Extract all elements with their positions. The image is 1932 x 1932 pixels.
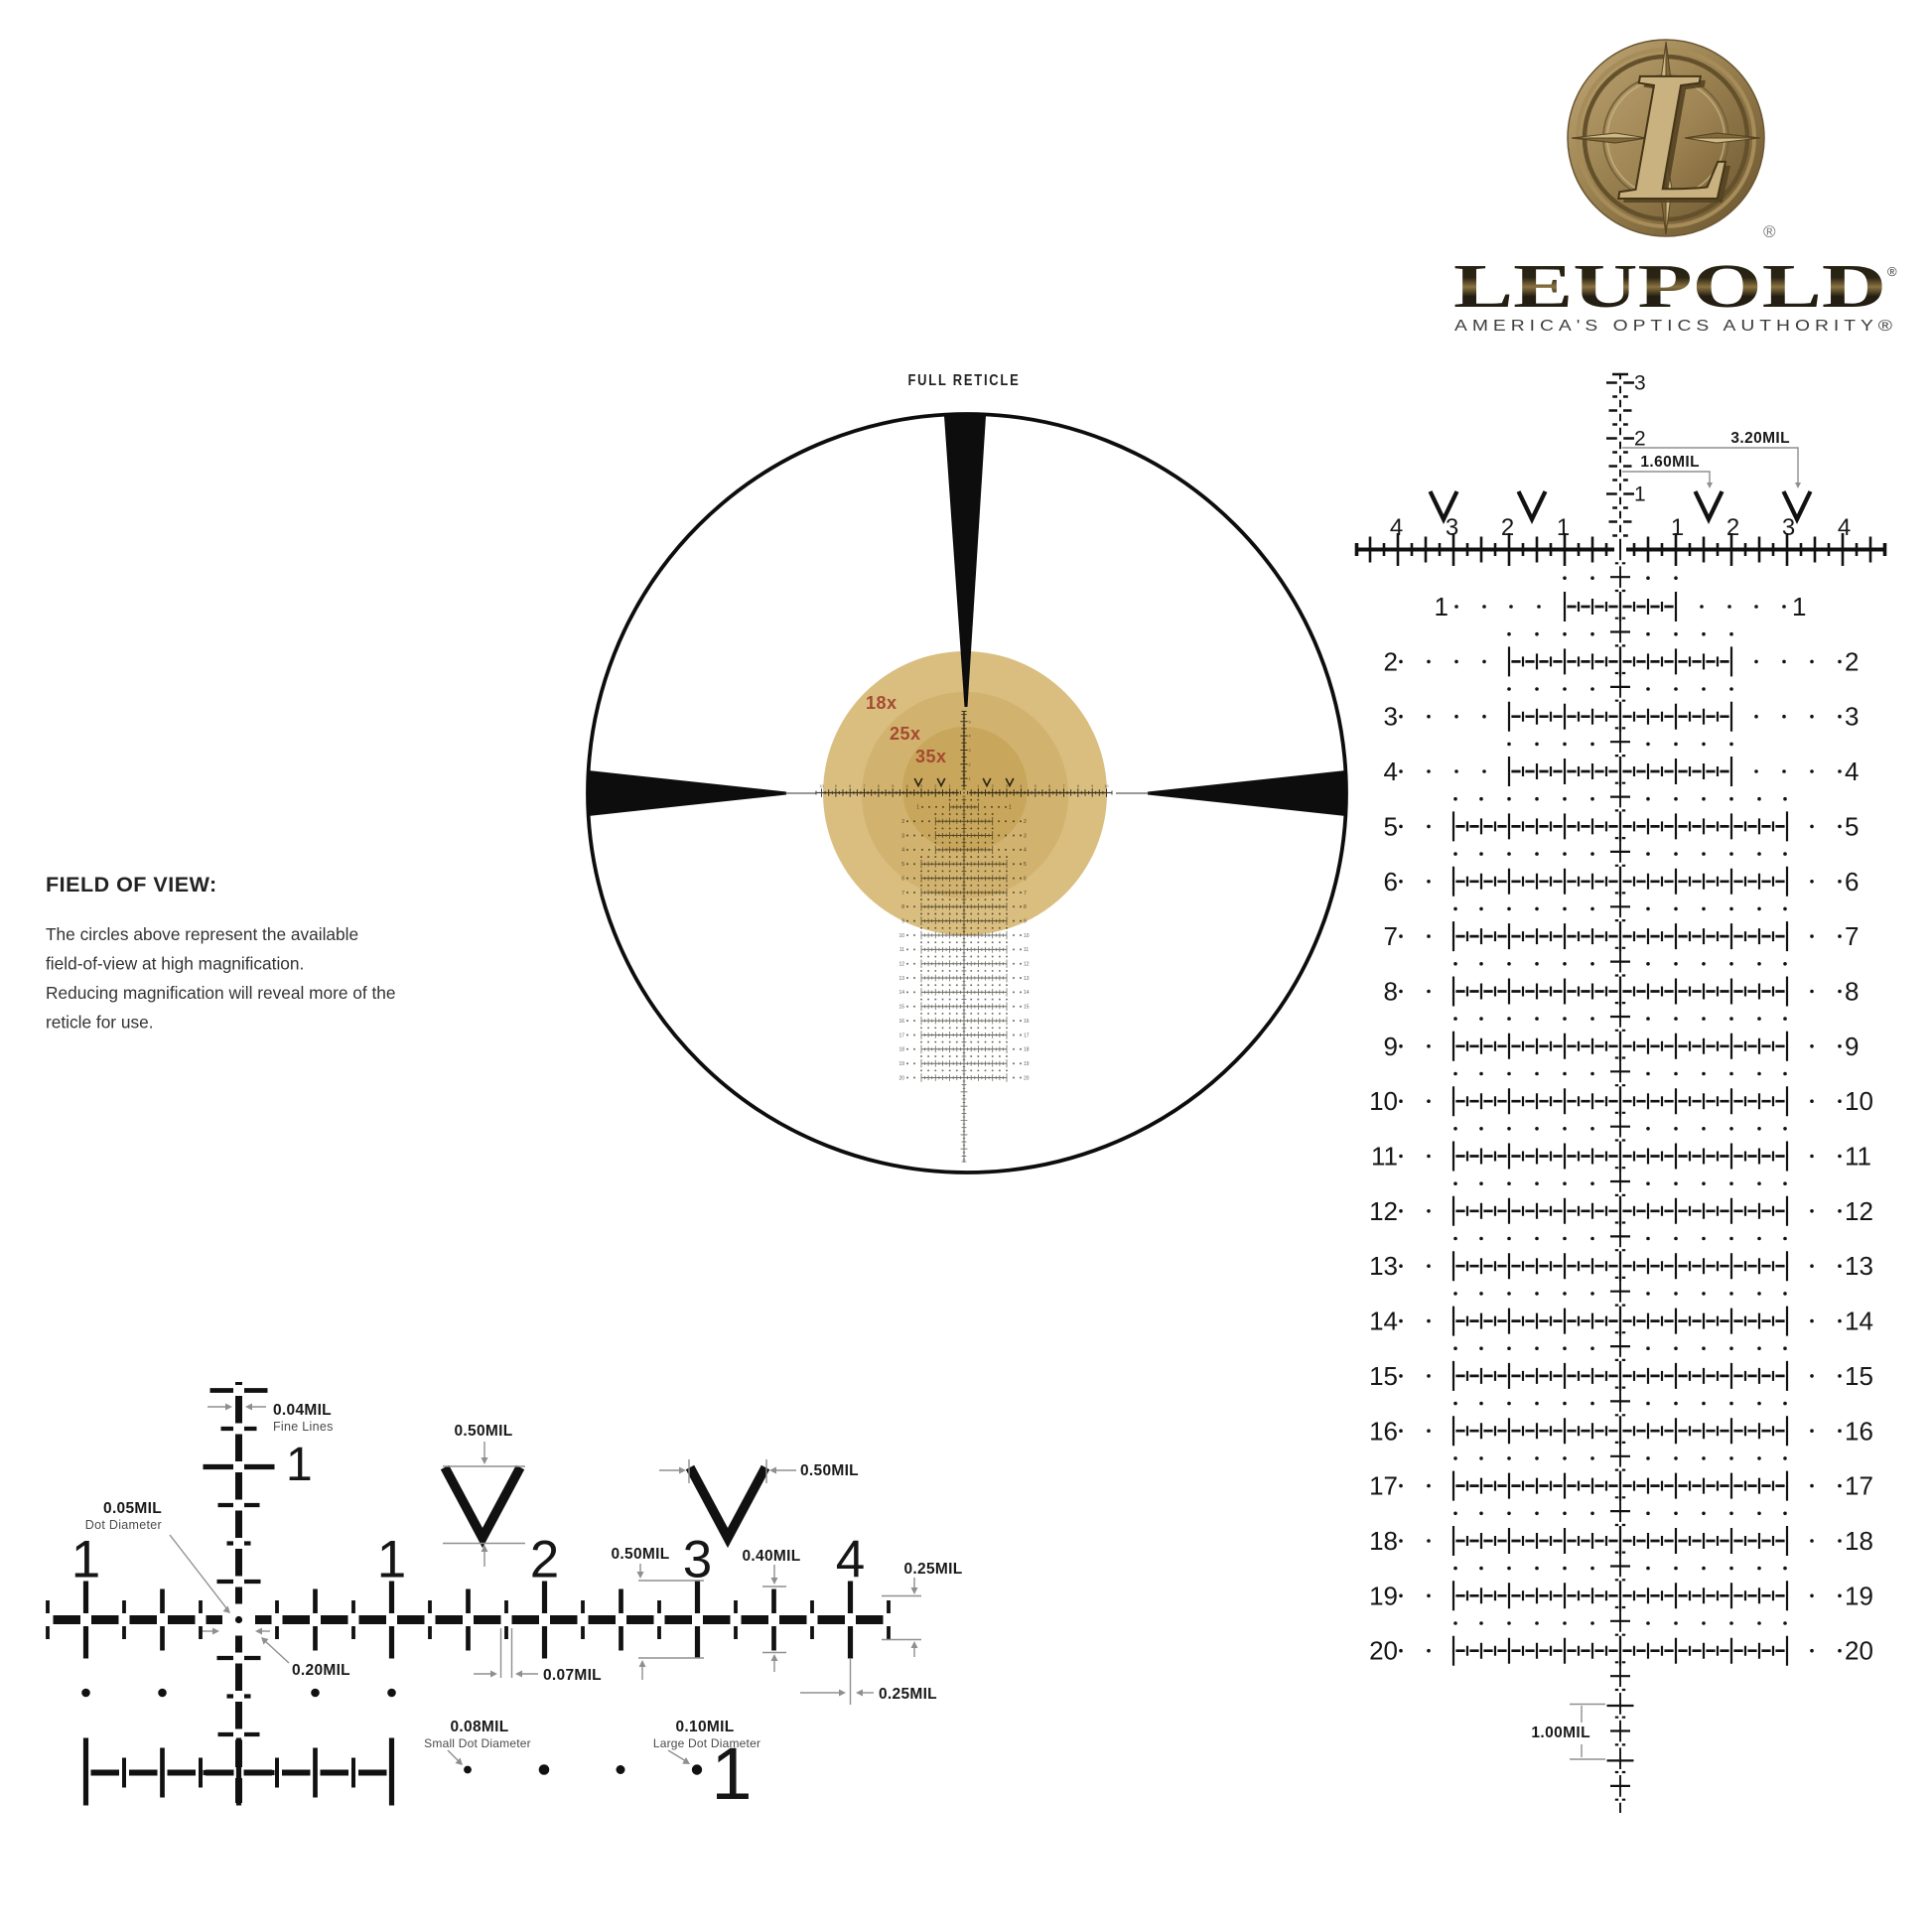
svg-text:0.10MIL: 0.10MIL [676,1719,735,1735]
svg-text:15: 15 [1024,1005,1030,1011]
svg-text:L: L [1618,32,1734,239]
svg-text:5: 5 [1024,862,1027,868]
svg-text:10: 10 [1104,784,1108,788]
svg-text:15: 15 [1845,1361,1873,1391]
svg-text:2: 2 [530,1531,559,1589]
svg-text:3: 3 [1845,702,1859,732]
svg-text:25x: 25x [890,724,921,744]
svg-text:3: 3 [901,833,904,839]
svg-text:11: 11 [1024,947,1029,953]
svg-text:5: 5 [892,784,894,788]
svg-text:9: 9 [901,918,904,924]
svg-text:0.25MIL: 0.25MIL [879,1686,937,1703]
svg-text:10: 10 [819,784,823,788]
svg-text:5: 5 [1035,784,1036,788]
svg-text:5: 5 [1845,811,1859,841]
svg-text:7: 7 [1384,921,1398,951]
svg-text:15: 15 [1369,1361,1398,1391]
svg-text:3: 3 [1024,833,1027,839]
svg-text:0.25MIL: 0.25MIL [904,1561,963,1578]
svg-text:2: 2 [934,784,936,788]
svg-text:18: 18 [1369,1526,1398,1556]
svg-text:0.40MIL: 0.40MIL [743,1548,801,1565]
svg-text:14: 14 [1845,1307,1873,1336]
svg-text:4: 4 [906,784,908,788]
svg-text:3: 3 [1006,784,1008,788]
svg-text:13: 13 [1024,976,1030,982]
svg-text:FIELD OF VIEW:: FIELD OF VIEW: [46,873,217,897]
svg-text:4: 4 [1838,514,1851,541]
svg-text:8: 8 [849,784,851,788]
svg-text:2: 2 [1024,819,1027,825]
svg-text:20: 20 [1024,1075,1030,1081]
svg-text:1: 1 [71,1531,100,1589]
svg-text:5: 5 [901,862,904,868]
svg-text:3: 3 [1384,702,1398,732]
svg-text:2: 2 [1384,646,1398,676]
svg-text:8: 8 [1845,976,1859,1006]
svg-text:0.50MIL: 0.50MIL [612,1546,670,1563]
svg-text:11: 11 [1845,1142,1871,1172]
svg-text:4: 4 [901,848,904,854]
svg-text:18: 18 [1845,1526,1873,1556]
svg-text:8: 8 [1024,904,1027,910]
svg-text:19: 19 [1369,1581,1398,1610]
svg-text:Dot Diameter: Dot Diameter [85,1518,162,1532]
svg-text:16: 16 [1024,1019,1030,1025]
svg-text:3.20MIL: 3.20MIL [1730,430,1790,447]
svg-text:1.00MIL: 1.00MIL [1531,1725,1590,1741]
svg-text:10: 10 [1845,1086,1873,1116]
svg-text:7: 7 [901,891,904,897]
svg-text:16: 16 [1845,1416,1873,1446]
svg-text:2: 2 [1845,646,1859,676]
svg-text:0.07MIL: 0.07MIL [543,1667,602,1684]
svg-text:16: 16 [898,1019,904,1025]
svg-text:19: 19 [1024,1061,1030,1067]
svg-text:4: 4 [1384,757,1398,786]
svg-text:17: 17 [1024,1033,1030,1038]
svg-text:Small Dot Diameter: Small Dot Diameter [424,1736,531,1750]
svg-text:14: 14 [898,990,904,996]
svg-text:13: 13 [1845,1251,1873,1281]
svg-text:6: 6 [1845,867,1859,897]
svg-text:9: 9 [1024,918,1027,924]
svg-text:3: 3 [969,749,971,753]
svg-text:6: 6 [1024,876,1027,882]
svg-text:4: 4 [1390,514,1403,541]
svg-text:LEUPOLD: LEUPOLD [1453,253,1886,321]
svg-text:3: 3 [1634,372,1646,395]
svg-text:Fine Lines: Fine Lines [273,1420,334,1434]
svg-text:1: 1 [286,1439,313,1491]
svg-text:0.20MIL: 0.20MIL [292,1662,350,1679]
svg-text:The circles above represent th: The circles above represent the availabl… [46,924,358,944]
svg-text:19: 19 [898,1061,904,1067]
svg-text:14: 14 [1024,990,1030,996]
svg-text:®: ® [1763,222,1776,241]
svg-text:reticle for use.: reticle for use. [46,1013,154,1033]
svg-text:16: 16 [1369,1416,1398,1446]
svg-text:1: 1 [916,805,919,811]
svg-text:FULL RETICLE: FULL RETICLE [908,372,1021,389]
svg-text:11: 11 [899,947,904,953]
svg-text:20: 20 [1369,1636,1398,1666]
svg-text:35x: 35x [915,747,947,766]
svg-text:2: 2 [1501,514,1514,541]
svg-text:field-of-view at high magnific: field-of-view at high magnification. [46,954,304,974]
svg-text:1: 1 [949,784,951,788]
svg-text:2: 2 [1634,428,1646,451]
svg-text:3: 3 [1446,514,1458,541]
svg-text:7: 7 [1845,921,1859,951]
svg-text:1: 1 [977,784,979,788]
svg-text:0.50MIL: 0.50MIL [800,1462,859,1479]
svg-text:4: 4 [1024,848,1027,854]
svg-text:0.04MIL: 0.04MIL [273,1402,332,1419]
svg-text:9: 9 [1845,1032,1859,1061]
svg-text:0.50MIL: 0.50MIL [455,1423,513,1440]
svg-text:0.08MIL: 0.08MIL [451,1719,509,1735]
svg-text:4: 4 [969,735,971,739]
svg-text:8: 8 [901,904,904,910]
svg-text:1: 1 [969,777,971,781]
svg-text:5: 5 [1384,811,1398,841]
svg-text:2: 2 [901,819,904,825]
svg-text:1: 1 [1557,514,1570,541]
svg-text:14: 14 [1369,1307,1398,1336]
svg-text:2: 2 [969,762,971,766]
svg-text:1: 1 [1792,592,1806,621]
svg-text:17: 17 [898,1033,904,1038]
svg-text:1.60MIL: 1.60MIL [1640,454,1700,471]
svg-text:12: 12 [898,962,904,968]
svg-text:4: 4 [836,1531,865,1589]
svg-text:18x: 18x [866,693,897,713]
svg-text:10: 10 [1369,1086,1398,1116]
svg-text:3: 3 [920,784,922,788]
svg-text:19: 19 [1845,1581,1873,1610]
svg-text:®: ® [1887,264,1897,279]
svg-text:1: 1 [1634,483,1646,506]
svg-text:1: 1 [377,1531,406,1589]
svg-text:7: 7 [863,784,865,788]
svg-text:7: 7 [1062,784,1064,788]
svg-text:1: 1 [1671,514,1684,541]
svg-text:12: 12 [1369,1196,1398,1226]
svg-text:13: 13 [1369,1251,1398,1281]
svg-text:7: 7 [1024,891,1027,897]
svg-text:17: 17 [1845,1471,1873,1501]
svg-text:0.05MIL: 0.05MIL [103,1500,162,1517]
svg-text:Large Dot Diameter: Large Dot Diameter [653,1736,760,1750]
svg-text:Reducing magnification will re: Reducing magnification will reveal more … [46,983,396,1003]
svg-text:20: 20 [898,1075,904,1081]
svg-text:6: 6 [901,876,904,882]
svg-text:12: 12 [1845,1196,1873,1226]
svg-text:10: 10 [1024,933,1030,939]
svg-text:15: 15 [898,1005,904,1011]
svg-text:4: 4 [1845,757,1859,786]
svg-text:17: 17 [1369,1471,1398,1501]
svg-text:1: 1 [1009,805,1012,811]
svg-text:1: 1 [1435,592,1449,621]
svg-text:AMERICA'S OPTICS AUTHORITY®: AMERICA'S OPTICS AUTHORITY® [1454,318,1897,335]
svg-text:2: 2 [1726,514,1739,541]
svg-text:6: 6 [1384,867,1398,897]
svg-text:9: 9 [1384,1032,1398,1061]
svg-text:9: 9 [1091,784,1093,788]
svg-text:18: 18 [898,1047,904,1053]
svg-text:5: 5 [969,720,971,724]
svg-text:9: 9 [835,784,837,788]
svg-text:2: 2 [992,784,994,788]
svg-text:20: 20 [1845,1636,1873,1666]
svg-text:4: 4 [1020,784,1022,788]
svg-text:12: 12 [1024,962,1030,968]
svg-text:6: 6 [1048,784,1050,788]
svg-text:13: 13 [898,976,904,982]
svg-text:10: 10 [898,933,904,939]
svg-text:6: 6 [878,784,880,788]
svg-text:3: 3 [1782,514,1795,541]
svg-text:18: 18 [1024,1047,1030,1053]
svg-text:8: 8 [1384,976,1398,1006]
svg-text:11: 11 [1371,1142,1398,1172]
svg-text:8: 8 [1077,784,1079,788]
